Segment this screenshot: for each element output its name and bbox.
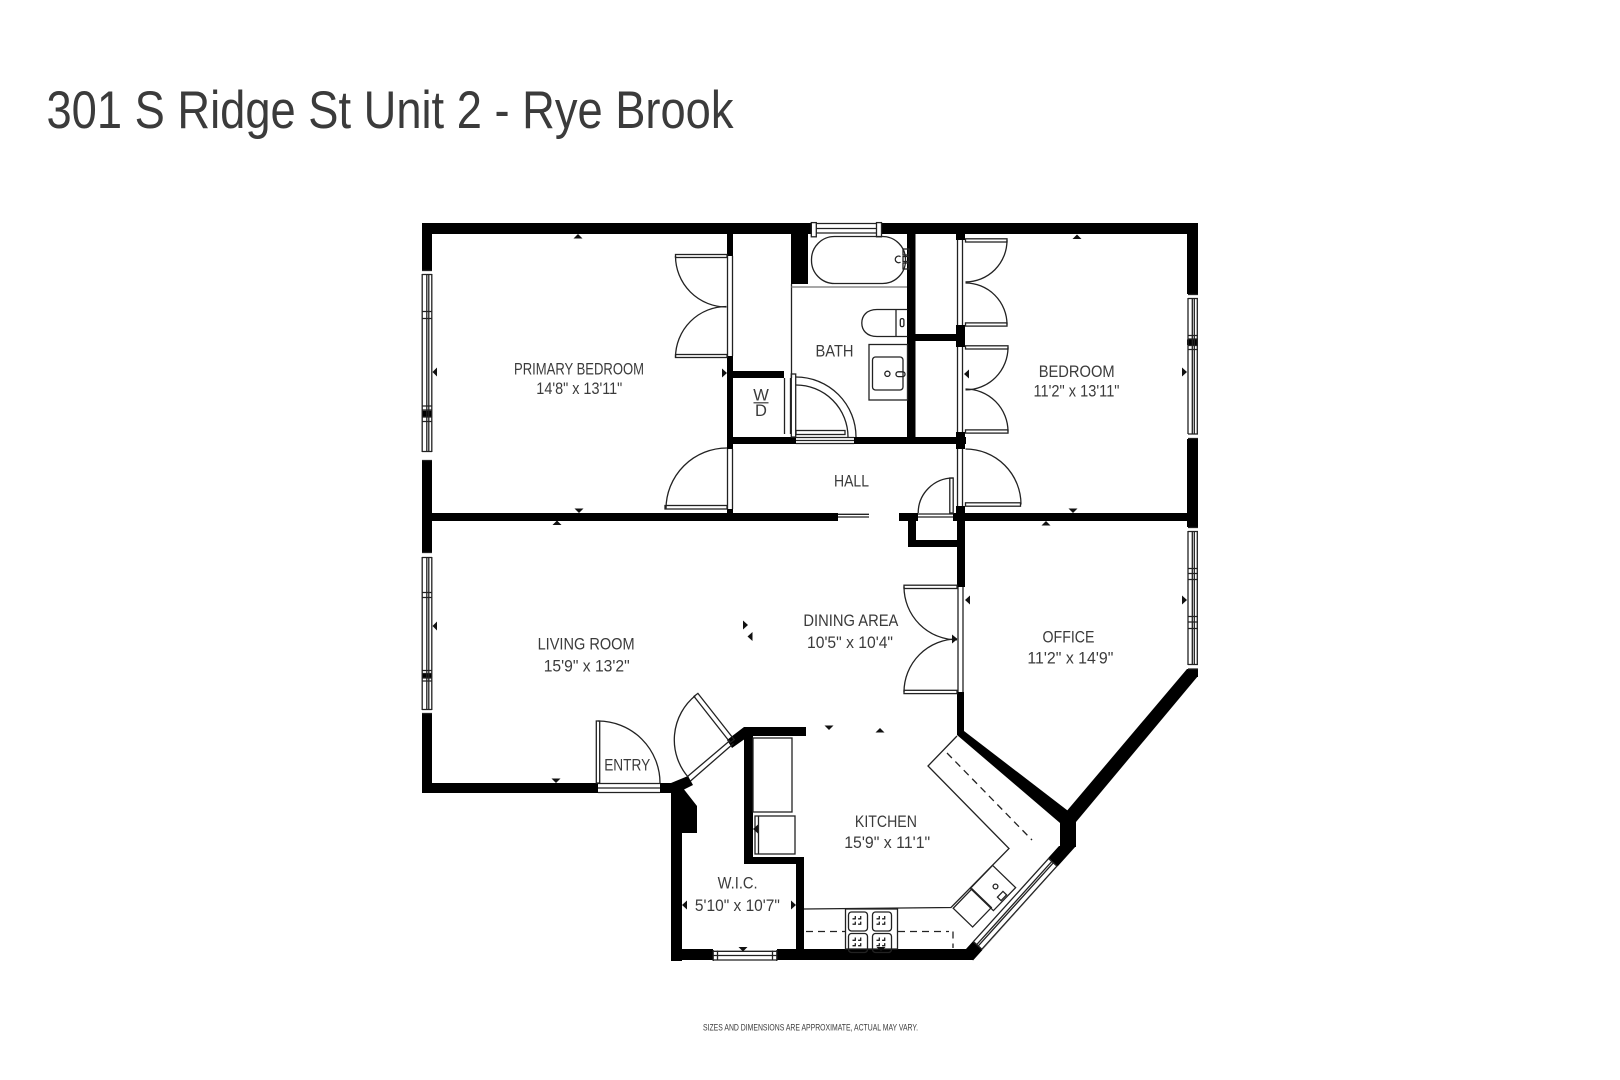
svg-text:W.I.C.: W.I.C. (718, 875, 758, 893)
svg-text:OFFICE: OFFICE (1043, 629, 1095, 647)
svg-text:KITCHEN: KITCHEN (855, 813, 917, 831)
svg-text:PRIMARY BEDROOM: PRIMARY BEDROOM (514, 360, 644, 378)
svg-text:11'2" x 14'9": 11'2" x 14'9" (1027, 650, 1113, 668)
svg-text:BATH: BATH (816, 342, 854, 360)
svg-text:BEDROOM: BEDROOM (1039, 363, 1115, 381)
svg-text:14'8" x 13'11": 14'8" x 13'11" (536, 380, 622, 398)
svg-text:15'9" x 11'1": 15'9" x 11'1" (844, 834, 930, 852)
svg-text:HALL: HALL (834, 472, 869, 490)
svg-text:301 S Ridge St Unit 2 - Rye Br: 301 S Ridge St Unit 2 - Rye Brook (47, 81, 735, 140)
svg-text:5'10" x 10'7": 5'10" x 10'7" (695, 897, 780, 915)
svg-text:15'9" x 13'2": 15'9" x 13'2" (544, 658, 630, 676)
svg-text:D: D (755, 402, 767, 420)
svg-text:11'2" x 13'11": 11'2" x 13'11" (1034, 383, 1120, 401)
svg-text:SIZES AND DIMENSIONS ARE APPRO: SIZES AND DIMENSIONS ARE APPROXIMATE, AC… (703, 1023, 918, 1033)
svg-text:ENTRY: ENTRY (604, 756, 650, 774)
svg-text:DINING AREA: DINING AREA (803, 612, 898, 630)
svg-text:LIVING ROOM: LIVING ROOM (538, 635, 635, 653)
svg-text:10'5" x 10'4": 10'5" x 10'4" (807, 634, 893, 652)
